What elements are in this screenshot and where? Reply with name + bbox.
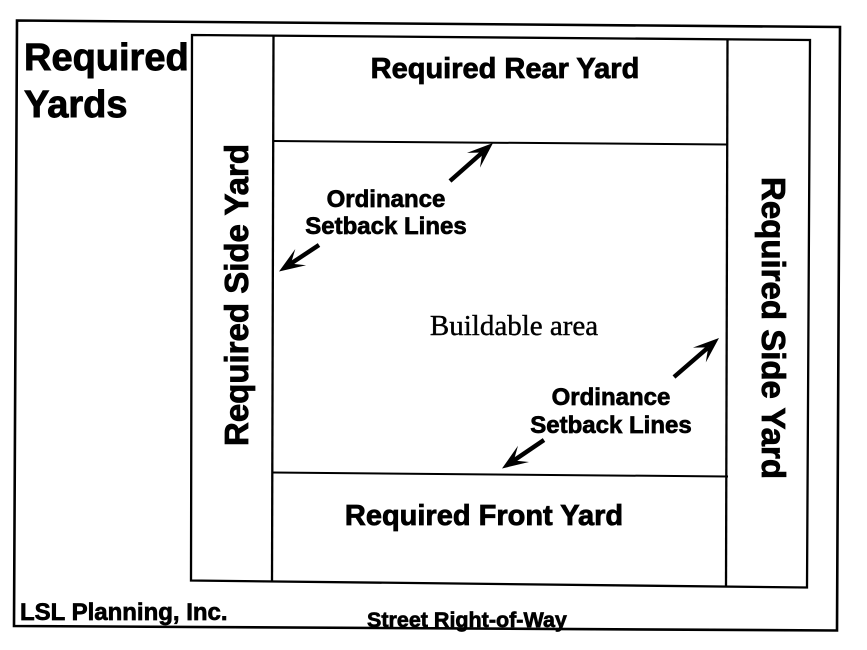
svg-text:Ordinance: Ordinance	[327, 186, 446, 213]
svg-text:Required Rear Yard: Required Rear Yard	[371, 53, 640, 85]
svg-text:Yards: Yards	[24, 84, 128, 126]
svg-text:Setback Lines: Setback Lines	[530, 412, 691, 439]
svg-text:Required: Required	[24, 37, 189, 79]
svg-text:Street Right-of-Way: Street Right-of-Way	[367, 608, 567, 632]
svg-text:Required Front Yard: Required Front Yard	[345, 500, 623, 532]
svg-text:LSL Planning, Inc.: LSL Planning, Inc.	[20, 599, 228, 626]
svg-text:Ordinance: Ordinance	[552, 384, 671, 411]
svg-text:Setback Lines: Setback Lines	[305, 213, 466, 240]
svg-text:Required Side Yard: Required Side Yard	[218, 144, 255, 446]
svg-text:Buildable area: Buildable area	[430, 310, 598, 342]
svg-text:Required Side Yard: Required Side Yard	[755, 177, 792, 479]
